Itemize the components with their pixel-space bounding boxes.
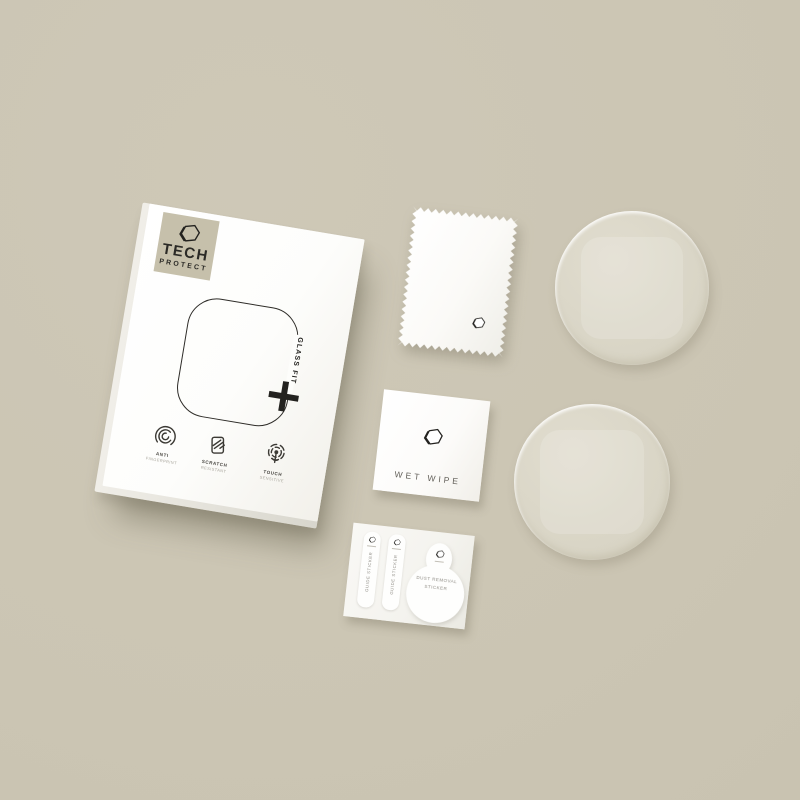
dust-removal-sticker: DUST REMOVAL STICKER [403,540,469,626]
box-face: TECH PROTECT GLASS FIT ANTI FINGERPRINT [102,204,364,522]
guide-sticker-label: GUIDE STICKER [364,551,373,592]
cloth-fabric [397,206,518,357]
strip-hexagon-logo-icon [392,538,402,547]
wet-wipe-hexagon-logo-icon [419,425,445,450]
brand-logo-square: TECH PROTECT [154,212,220,281]
fine-print-line [367,545,376,547]
guide-sticker-strip: GUIDE STICKER [356,531,381,608]
sticker-sheet: GUIDE STICKER GUIDE STICKER DUST REMOVAL [343,523,475,630]
watch-shape-outline: GLASS FIT [173,294,303,431]
dust-sticker-hexagon-logo-icon [434,549,446,560]
touch-sensitive-icon [261,440,291,470]
cloth-hexagon-logo-icon [470,315,488,332]
feature-scratch-resistant: SCRATCH RESISTANT [186,428,248,477]
feature-touch-sensitive: TOUCH SENSITIVE [244,437,306,486]
product-photo-scene: TECH PROTECT GLASS FIT ANTI FINGERPRINT [0,0,800,800]
cleaning-cloth [397,206,518,357]
glass-disc-2 [514,404,670,560]
wet-wipe-label: WET WIPE [374,467,481,489]
guide-sticker-label: GUIDE STICKER [389,554,398,595]
wet-wipe-packet: WET WIPE [373,389,491,501]
scratch-resistant-icon [203,430,233,460]
guide-sticker-strip: GUIDE STICKER [381,534,406,611]
fine-print-line [434,561,443,563]
fine-print-line [392,548,401,550]
plus-icon [266,379,301,414]
product-box: TECH PROTECT GLASS FIT ANTI FINGERPRINT [94,202,364,528]
fingerprint-icon [150,421,180,451]
glass-disc-1 [555,211,709,365]
strip-hexagon-logo-icon [367,535,377,544]
